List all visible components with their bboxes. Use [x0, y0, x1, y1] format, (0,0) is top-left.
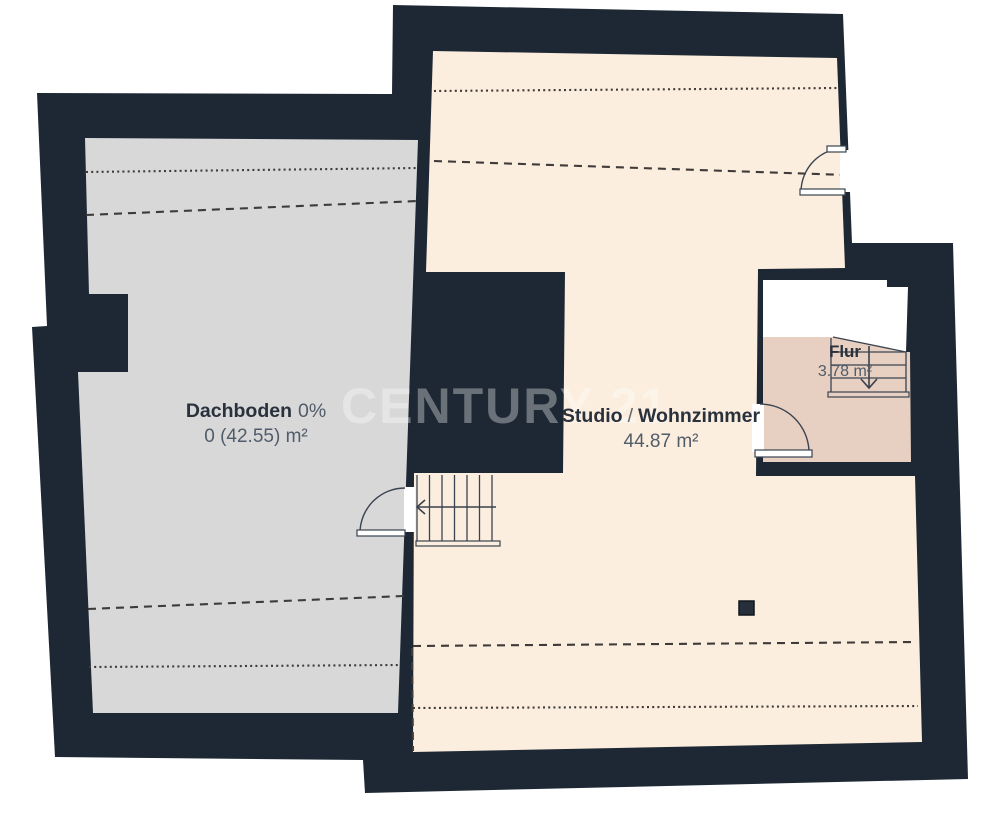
floorplan-canvas: CENTURY 21 Dachboden0% 0 (42.55) m² Stud…	[0, 0, 1000, 817]
room-label-studio: Studio/Wohnzimmer 44.87 m²	[562, 404, 760, 454]
room-area: 44.87 m²	[562, 429, 760, 454]
room-area: 0 (42.55) m²	[186, 424, 326, 449]
room-name: Dachboden	[186, 400, 292, 422]
room-name2: Wohnzimmer	[638, 405, 760, 427]
room-area: 3.78 m²	[818, 362, 872, 382]
room-occupancy: 0%	[298, 400, 326, 422]
room-label-dachboden: Dachboden0% 0 (42.55) m²	[186, 399, 326, 449]
room-name-separator: /	[628, 405, 633, 427]
room-name: Studio	[562, 405, 623, 427]
room-name: Flur	[818, 341, 872, 362]
room-label-flur: Flur 3.78 m²	[818, 341, 872, 382]
chimney-marker	[739, 601, 754, 615]
